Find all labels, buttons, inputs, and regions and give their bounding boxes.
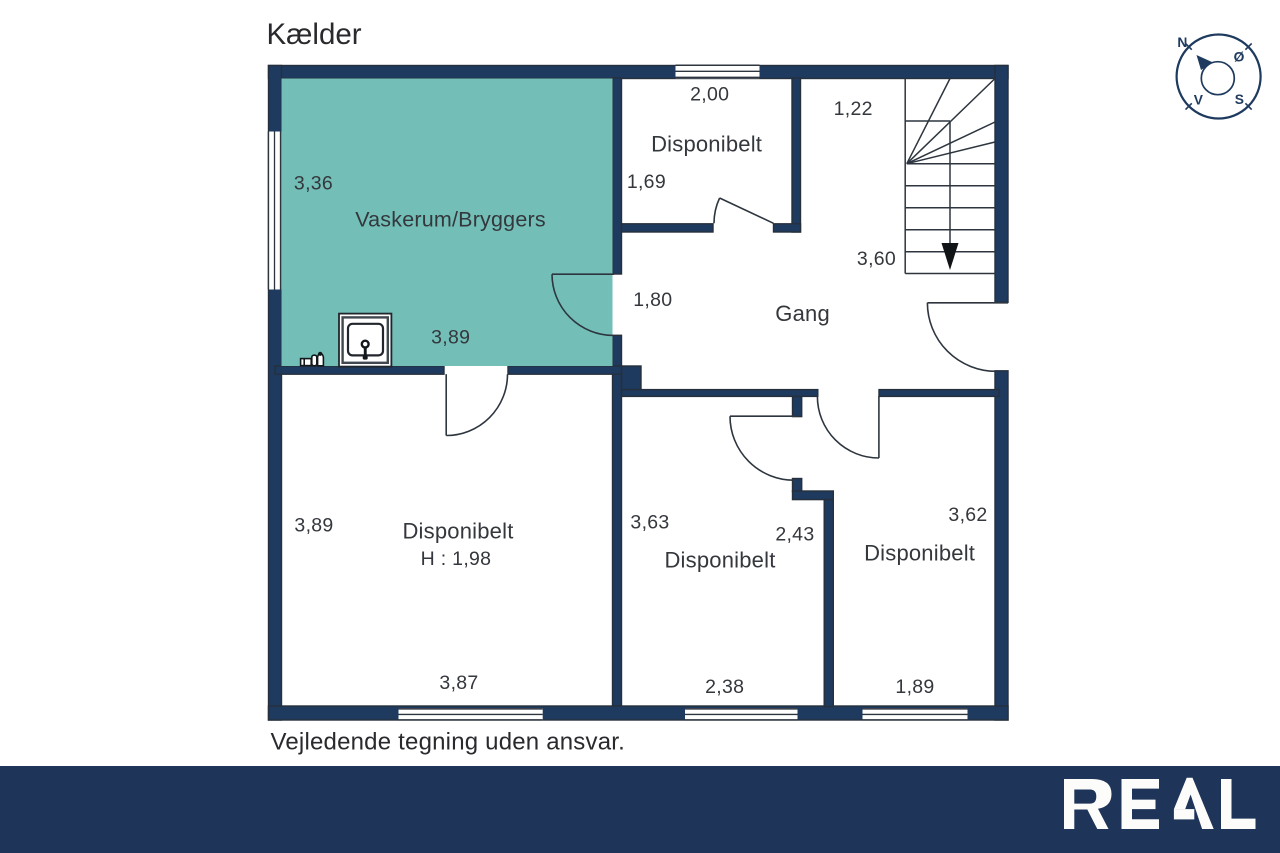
svg-text:Disponibelt: Disponibelt xyxy=(864,541,975,566)
svg-text:1,69: 1,69 xyxy=(627,171,666,193)
svg-text:3,60: 3,60 xyxy=(857,248,896,270)
svg-text:3,89: 3,89 xyxy=(431,327,470,349)
svg-text:3,89: 3,89 xyxy=(294,515,333,537)
svg-text:Gang: Gang xyxy=(775,301,830,326)
svg-text:1,89: 1,89 xyxy=(895,676,934,698)
svg-text:3,36: 3,36 xyxy=(294,172,333,194)
svg-text:3,62: 3,62 xyxy=(948,504,987,526)
svg-text:3,87: 3,87 xyxy=(439,672,478,694)
svg-text:2,43: 2,43 xyxy=(775,524,814,546)
svg-text:Vaskerum/Bryggers: Vaskerum/Bryggers xyxy=(355,208,546,232)
svg-text:Disponibelt: Disponibelt xyxy=(402,518,513,543)
svg-text:1,22: 1,22 xyxy=(834,98,873,120)
svg-text:3,63: 3,63 xyxy=(630,511,669,533)
svg-text:S: S xyxy=(1235,92,1244,107)
svg-text:H : 1,98: H : 1,98 xyxy=(421,548,492,570)
svg-text:Disponibelt: Disponibelt xyxy=(664,547,775,572)
svg-text:Ø: Ø xyxy=(1234,50,1245,65)
svg-text:V: V xyxy=(1194,92,1204,107)
svg-text:N: N xyxy=(1177,35,1187,50)
svg-text:Kælder: Kælder xyxy=(267,18,362,51)
svg-text:Disponibelt: Disponibelt xyxy=(651,131,762,156)
svg-text:Vejledende tegning uden ansvar: Vejledende tegning uden ansvar. xyxy=(271,728,626,755)
svg-text:2,38: 2,38 xyxy=(705,676,744,698)
svg-text:1,80: 1,80 xyxy=(633,289,672,311)
svg-text:2,00: 2,00 xyxy=(690,84,729,106)
